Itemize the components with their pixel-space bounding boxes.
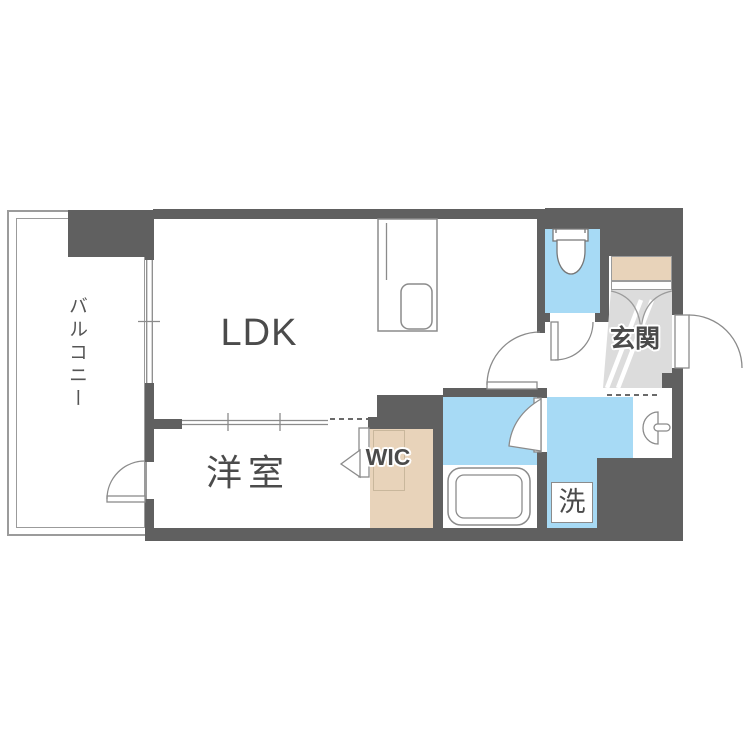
wall-segment (537, 452, 547, 528)
window (145, 260, 154, 383)
wall-segment (377, 395, 443, 429)
wall-segment (600, 256, 609, 322)
label-western-room: 洋室 (188, 444, 308, 496)
toilet-door-leaf (551, 322, 558, 360)
bathtub (448, 468, 530, 525)
wall-segment (368, 417, 377, 429)
wall-segment (672, 256, 683, 315)
bathtub-inner (456, 475, 522, 518)
label-laundry: 洗 (551, 482, 593, 523)
room-bathroom (443, 397, 537, 465)
wall-segment (545, 313, 550, 322)
wall-segment (545, 208, 600, 229)
wall-segment (433, 428, 443, 528)
label-ldk: LDK (204, 312, 314, 355)
floor-plan: バルコニー LDK 洋室 WIC 玄関 洗 (0, 0, 750, 750)
wall-segment (145, 383, 154, 462)
kitchen-sink (401, 284, 432, 329)
entrance-door-swing (689, 315, 742, 368)
room-washroom (547, 397, 633, 458)
wall-segment (597, 458, 672, 528)
wall-segment (68, 210, 154, 257)
label-wic: WIC (346, 444, 430, 471)
wall-segment (537, 388, 547, 398)
wall-segment (145, 528, 683, 541)
wall-segment (672, 368, 683, 528)
washbasin (643, 412, 658, 444)
kitchen-counter (378, 219, 437, 331)
entrance-door-leaf (675, 315, 689, 368)
wall-segment (443, 388, 543, 397)
label-balcony: バルコニー (63, 296, 90, 411)
washbasin-faucet (654, 424, 670, 431)
wall-segment (145, 219, 154, 261)
wall-segment (154, 419, 182, 429)
hall-door-swing (487, 332, 540, 385)
wall-segment (662, 373, 672, 388)
wall-segment (537, 219, 545, 333)
shoe-cabinet (611, 256, 672, 281)
wall-segment (600, 208, 683, 256)
shoe-cabinet-counter (611, 281, 672, 290)
toilet-door-swing (555, 322, 593, 360)
label-entrance: 玄関 (598, 319, 672, 355)
room-toilet (545, 229, 600, 313)
